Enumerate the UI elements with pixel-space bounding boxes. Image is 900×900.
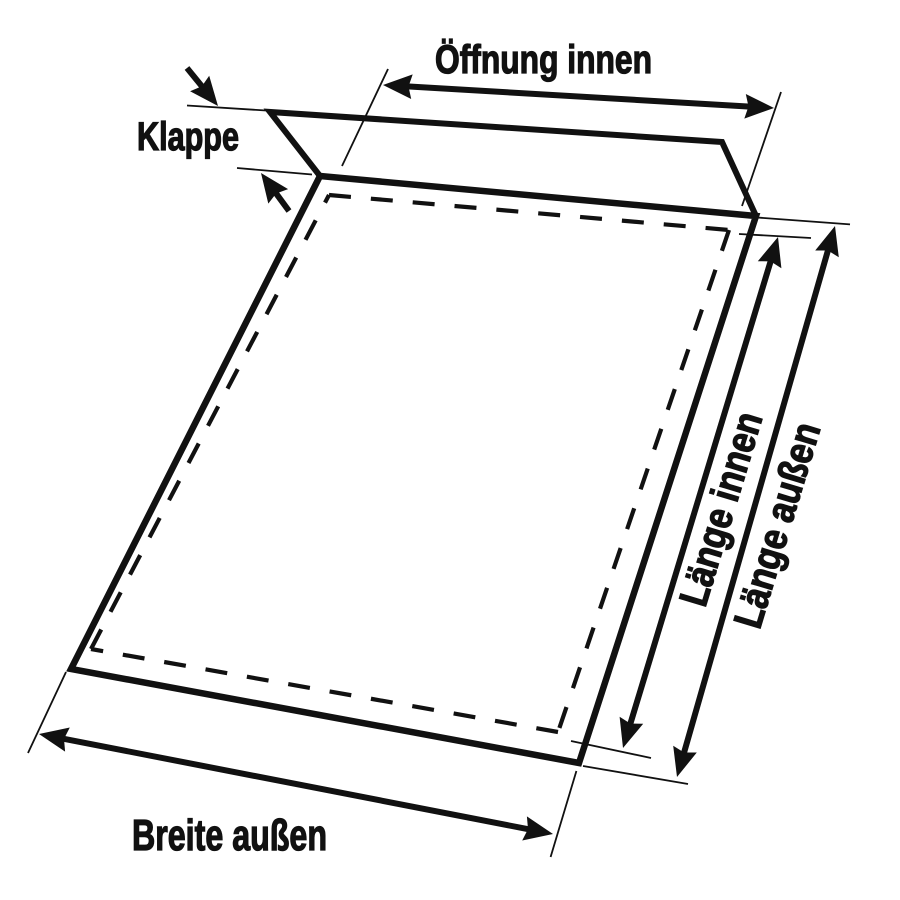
svg-text:Öffnung innen: Öffnung innen xyxy=(435,37,652,82)
svg-text:Breite außen: Breite außen xyxy=(132,812,327,860)
svg-text:Klappe: Klappe xyxy=(137,115,239,159)
